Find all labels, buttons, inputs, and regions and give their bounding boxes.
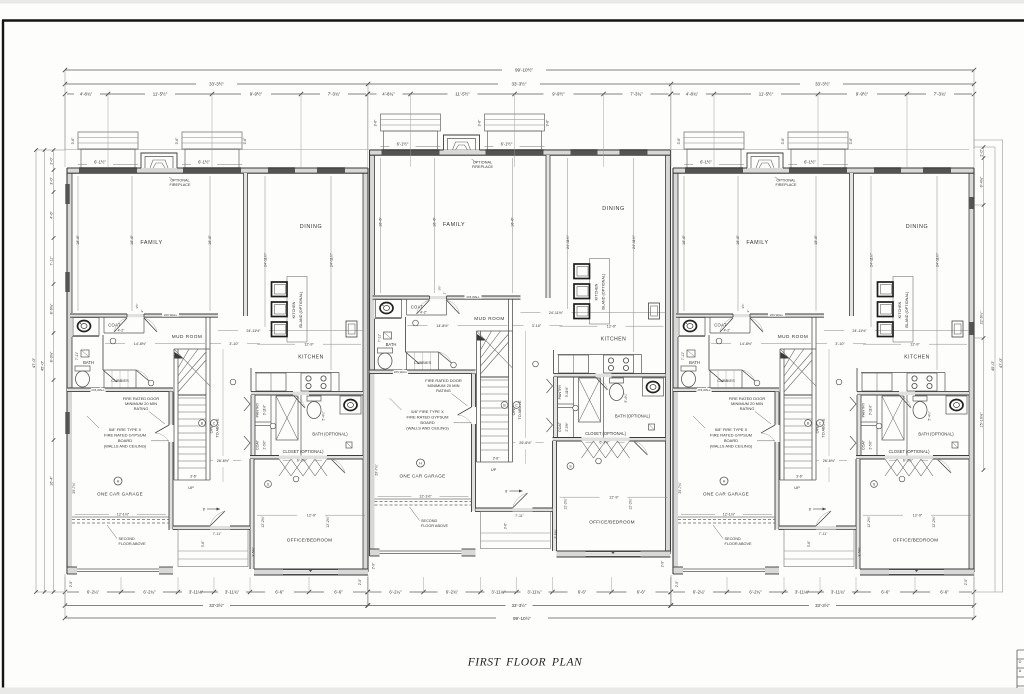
svg-text:99'-10½": 99'-10½" <box>515 67 533 73</box>
svg-text:45'-0": 45'-0" <box>990 360 995 371</box>
svg-text:99'-10½": 99'-10½" <box>513 615 531 621</box>
svg-text:33'-3½": 33'-3½" <box>815 81 830 86</box>
svg-text:2'-0": 2'-0" <box>980 149 984 157</box>
svg-text:7'-11": 7'-11" <box>50 256 54 266</box>
svg-text:4'-6": 4'-6" <box>50 211 54 219</box>
svg-text:15'-10¾": 15'-10¾" <box>980 412 984 428</box>
svg-text:22'-9¼": 22'-9¼" <box>980 311 984 324</box>
svg-text:FIRST FLOOR PLAN: FIRST FLOOR PLAN <box>467 656 583 669</box>
svg-text:47'-0": 47'-0" <box>31 357 36 368</box>
svg-text:33'-3½": 33'-3½" <box>512 81 527 86</box>
svg-text:33'-3½": 33'-3½" <box>209 81 224 86</box>
svg-text:2'-0": 2'-0" <box>50 157 54 165</box>
svg-text:8'-3¾": 8'-3¾" <box>50 351 54 362</box>
svg-text:16'-4": 16'-4" <box>50 476 54 486</box>
svg-text:6'-4¾": 6'-4¾" <box>980 176 984 187</box>
svg-text:O: O <box>1019 660 1022 664</box>
svg-text:47'-0": 47'-0" <box>998 357 1003 368</box>
svg-text:3'-0": 3'-0" <box>50 177 54 185</box>
svg-text:45'-0": 45'-0" <box>40 360 45 371</box>
svg-text:8'-9¾": 8'-9¾" <box>50 303 54 314</box>
